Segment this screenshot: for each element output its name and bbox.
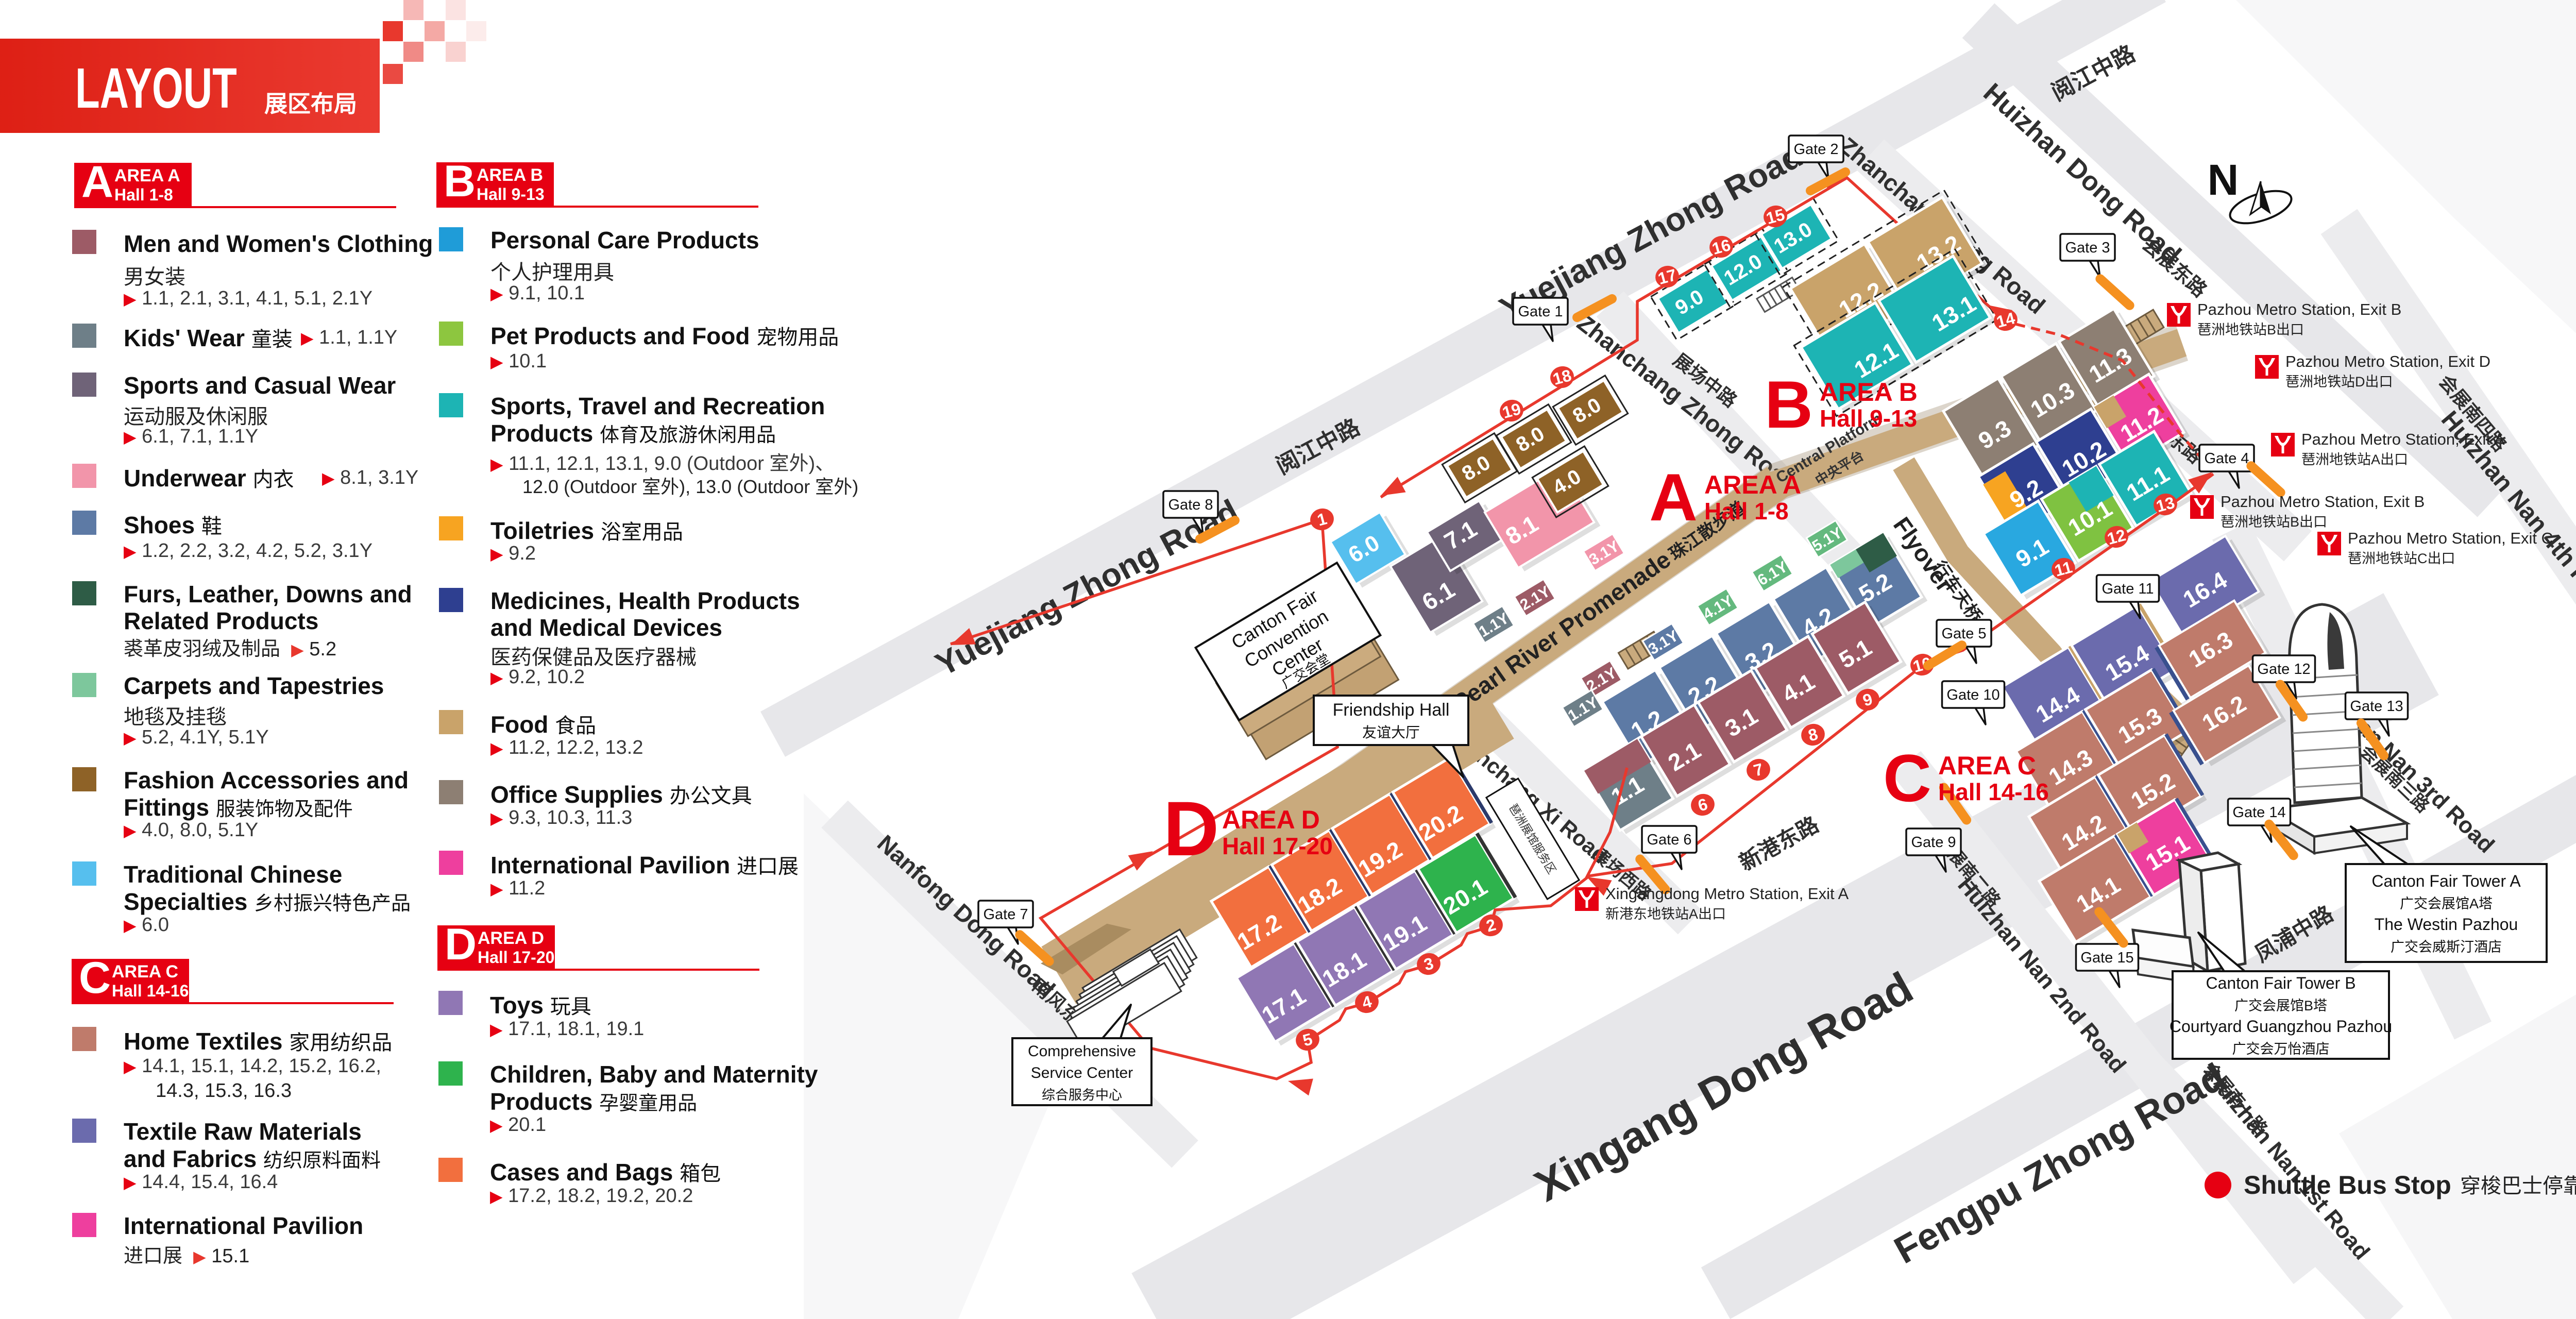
- svg-text:Pazhou Metro Station, Exit D: Pazhou Metro Station, Exit D: [2285, 352, 2490, 370]
- svg-text:A: A: [1649, 460, 1698, 535]
- svg-text:广交会威斯汀酒店: 广交会威斯汀酒店: [2391, 939, 2502, 955]
- svg-text:Canton Fair Tower A: Canton Fair Tower A: [2371, 872, 2521, 890]
- svg-text:AREA B: AREA B: [1820, 378, 1918, 407]
- svg-text:Shuttle Bus Stop: Shuttle Bus Stop: [2244, 1171, 2451, 1199]
- svg-text:Gate 2: Gate 2: [1793, 141, 1838, 158]
- svg-text:综合服务中心: 综合服务中心: [1042, 1087, 1122, 1103]
- svg-text:Gate 10: Gate 10: [1946, 687, 1999, 703]
- svg-text:N: N: [2208, 156, 2239, 204]
- svg-text:Gate 13: Gate 13: [2350, 698, 2403, 715]
- svg-text:The Westin Pazhou: The Westin Pazhou: [2375, 915, 2518, 934]
- svg-text:Gate 3: Gate 3: [2065, 240, 2110, 256]
- svg-text:新港东地铁站A出口: 新港东地铁站A出口: [1605, 906, 1726, 922]
- svg-text:Gate 7: Gate 7: [983, 906, 1028, 923]
- svg-text:Pazhou Metro Station, Exit B: Pazhou Metro Station, Exit B: [2197, 300, 2401, 318]
- svg-text:友谊大厅: 友谊大厅: [1362, 724, 1420, 740]
- svg-text:Gate 4: Gate 4: [2204, 450, 2249, 467]
- svg-text:Gate 5: Gate 5: [1941, 625, 1986, 642]
- svg-text:Friendship Hall: Friendship Hall: [1333, 700, 1450, 720]
- svg-text:Hall 17-20: Hall 17-20: [1222, 833, 1333, 859]
- svg-text:B: B: [1765, 367, 1813, 442]
- svg-text:D: D: [1163, 785, 1219, 872]
- svg-text:Pazhou Metro Station, Exit A: Pazhou Metro Station, Exit A: [2301, 430, 2505, 448]
- svg-text:Service Center: Service Center: [1031, 1064, 1133, 1081]
- svg-text:AREA C: AREA C: [1938, 751, 2036, 780]
- svg-text:Gate 12: Gate 12: [2257, 661, 2310, 678]
- svg-text:Comprehensive: Comprehensive: [1028, 1043, 1136, 1060]
- svg-text:Xingangdong Metro Station, Exi: Xingangdong Metro Station, Exit A: [1605, 885, 1849, 903]
- svg-text:Hall 1-8: Hall 1-8: [1704, 498, 1789, 525]
- svg-text:C: C: [1883, 740, 1931, 816]
- svg-text:Gate 8: Gate 8: [1168, 497, 1213, 513]
- svg-text:Hall 14-16: Hall 14-16: [1938, 779, 2049, 805]
- svg-text:广交会展馆A塔: 广交会展馆A塔: [2400, 896, 2493, 911]
- svg-text:Courtyard Guangzhou Pazhou: Courtyard Guangzhou Pazhou: [2170, 1017, 2392, 1036]
- svg-text:Gate 14: Gate 14: [2232, 804, 2285, 821]
- svg-text:琶洲地铁站B出口: 琶洲地铁站B出口: [2221, 514, 2327, 530]
- svg-text:Gate 11: Gate 11: [2102, 581, 2154, 597]
- svg-text:Gate 15: Gate 15: [2080, 950, 2133, 966]
- svg-text:Pazhou Metro Station, Exit C: Pazhou Metro Station, Exit C: [2348, 529, 2553, 547]
- svg-text:琶洲地铁站D出口: 琶洲地铁站D出口: [2285, 374, 2393, 390]
- svg-text:穿梭巴士停靠站: 穿梭巴士停靠站: [2460, 1175, 2576, 1197]
- svg-text:广交会万怡酒店: 广交会万怡酒店: [2232, 1041, 2330, 1057]
- svg-text:Gate 6: Gate 6: [1647, 832, 1691, 848]
- svg-text:AREA D: AREA D: [1222, 805, 1320, 834]
- svg-text:Gate 9: Gate 9: [1911, 834, 1956, 851]
- svg-text:Gate 1: Gate 1: [1518, 303, 1563, 320]
- svg-text:琶洲地铁站C出口: 琶洲地铁站C出口: [2348, 551, 2455, 566]
- svg-text:Hall 9-13: Hall 9-13: [1820, 405, 1917, 432]
- svg-text:Canton Fair Tower B: Canton Fair Tower B: [2206, 974, 2355, 992]
- svg-text:AREA A: AREA A: [1704, 470, 1801, 499]
- svg-text:Pazhou Metro Station, Exit B: Pazhou Metro Station, Exit B: [2221, 493, 2425, 511]
- svg-text:琶洲地铁站B出口: 琶洲地铁站B出口: [2197, 322, 2304, 337]
- svg-text:琶洲地铁站A出口: 琶洲地铁站A出口: [2301, 452, 2408, 467]
- svg-text:广交会展馆B塔: 广交会展馆B塔: [2234, 998, 2327, 1013]
